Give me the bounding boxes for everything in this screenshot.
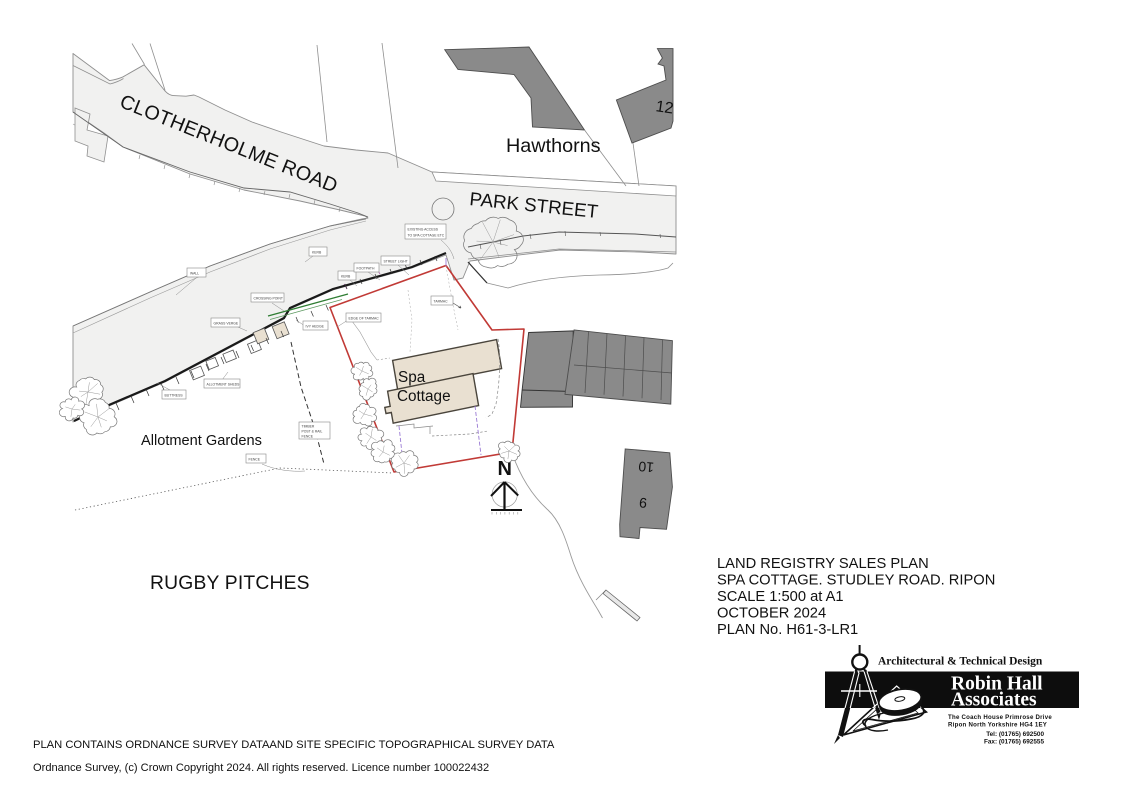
svg-text:Associates: Associates — [951, 690, 1037, 711]
svg-text:10: 10 — [638, 458, 655, 475]
svg-text:STREET LIGHT: STREET LIGHT — [384, 260, 408, 264]
svg-text:CROSSING POINT: CROSSING POINT — [254, 297, 283, 301]
svg-text:OCTOBER 2024: OCTOBER 2024 — [717, 606, 826, 622]
svg-text:PLAN CONTAINS ORDNANCE SURVEY: PLAN CONTAINS ORDNANCE SURVEY DATAAND SI… — [33, 739, 555, 751]
svg-text:SCALE 1:500 at A1: SCALE 1:500 at A1 — [717, 589, 844, 605]
svg-text:RUGBY PITCHES: RUGBY PITCHES — [150, 573, 310, 594]
svg-text:LAND REGISTRY SALES PLAN: LAND REGISTRY SALES PLAN — [717, 556, 929, 572]
svg-text:12: 12 — [655, 98, 675, 117]
svg-text:Spa: Spa — [398, 369, 426, 386]
svg-text:IVY HEDGE: IVY HEDGE — [306, 325, 325, 329]
svg-text:Hawthorns: Hawthorns — [506, 135, 601, 157]
svg-text:Ordnance Survey, (c) Crown Cop: Ordnance Survey, (c) Crown Copyright 202… — [33, 762, 489, 774]
svg-text:Architectural & Technical Desi: Architectural & Technical Design — [878, 656, 1043, 668]
svg-text:SPA COTTAGE. STUDLEY ROAD. RIP: SPA COTTAGE. STUDLEY ROAD. RIPON — [717, 573, 995, 589]
svg-text:Fax: (01765) 692555: Fax: (01765) 692555 — [984, 739, 1044, 746]
svg-text:Allotment Gardens: Allotment Gardens — [141, 433, 262, 449]
svg-text:PLAN No. H61-3-LR1: PLAN No. H61-3-LR1 — [717, 622, 858, 638]
svg-text:TARMAC: TARMAC — [434, 300, 449, 304]
svg-text:TO SPA COTTAGE ETC: TO SPA COTTAGE ETC — [408, 234, 445, 238]
svg-text:TIMBER: TIMBER — [302, 425, 315, 429]
svg-text:WALL: WALL — [190, 272, 199, 276]
svg-text:GRASS VERGE: GRASS VERGE — [214, 322, 239, 326]
svg-text:Tel: (01765) 692500: Tel: (01765) 692500 — [986, 731, 1044, 738]
svg-text:FENCE: FENCE — [249, 458, 261, 462]
svg-text:9: 9 — [638, 495, 647, 512]
svg-text:ALLOTMENT SHEDS: ALLOTMENT SHEDS — [207, 383, 241, 387]
svg-text:FENCE: FENCE — [302, 435, 314, 439]
svg-text:Cottage: Cottage — [397, 388, 451, 405]
svg-text:BUTTRESS: BUTTRESS — [165, 394, 184, 398]
svg-text:The Coach House Primrose Dr: The Coach House Primrose Drive — [948, 714, 1052, 721]
svg-text:FOOTPATH: FOOTPATH — [357, 267, 376, 271]
svg-text:KERB: KERB — [312, 251, 322, 255]
svg-text:Ripon North Yorkshire HG4: Ripon North Yorkshire HG4 1EY — [948, 722, 1047, 729]
svg-text:POST & RAIL: POST & RAIL — [302, 430, 323, 434]
svg-text:EDGE OF TARMAC: EDGE OF TARMAC — [349, 317, 380, 321]
svg-text:KERB: KERB — [341, 275, 351, 279]
svg-text:EXISTING ACCESS: EXISTING ACCESS — [408, 228, 439, 232]
